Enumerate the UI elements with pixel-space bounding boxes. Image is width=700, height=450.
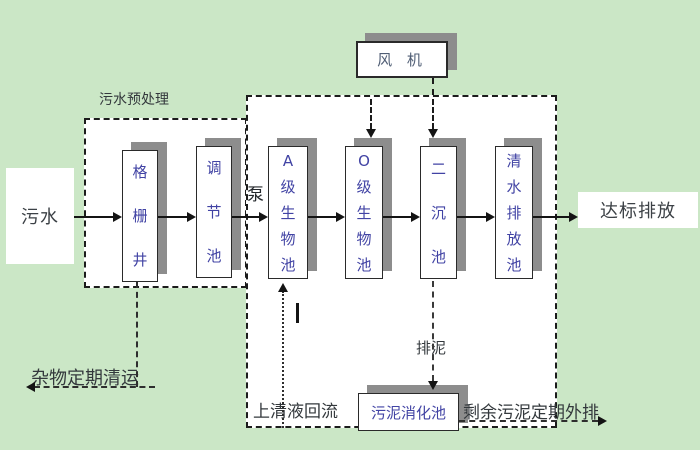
arrowhead-sewage-to-gridwell	[113, 212, 122, 222]
arrowhead-excess-sludge	[598, 416, 607, 426]
excess-sludge-line	[459, 420, 598, 422]
flow-line-a-to-o	[308, 216, 336, 218]
pretreatment-label: 污水预处理	[99, 89, 169, 109]
arrowhead-fan-to-secondary-tank	[428, 129, 438, 138]
debris-removal-hline	[34, 386, 155, 388]
node-a-bio-tank: A级生物池	[268, 146, 308, 279]
node-sludge-digestion-tank: 污泥消化池	[358, 393, 459, 431]
flow-line-secondary-to-clean	[457, 216, 486, 218]
node-secondary-sedimentation-tank: 二沉池	[420, 146, 457, 279]
node-sludge-digestion-tank-label: 污泥消化池	[371, 402, 446, 423]
node-grid-well-label: 格栅井	[130, 150, 150, 282]
fan-stem-line	[432, 78, 434, 95]
node-standard-discharge-label: 达标排放	[600, 197, 676, 223]
node-regulating-tank: 调节池	[196, 146, 232, 278]
node-grid-well: 格栅井	[122, 150, 158, 282]
node-a-bio-tank-label: A级生物池	[278, 148, 298, 278]
node-regulating-tank-label: 调节池	[204, 146, 224, 278]
supernatant-reflux-label: 上清液回流	[253, 397, 338, 422]
node-fan: 风 机	[356, 41, 448, 78]
node-fan-label: 风 机	[377, 49, 427, 70]
node-sewage-label: 污水	[21, 203, 59, 229]
arrowhead-sludge-discharge	[428, 381, 438, 390]
arrowhead-fan-to-o-tank	[366, 129, 376, 138]
sludge-discharge-line	[432, 281, 434, 381]
fan-branch-line-secondary-tank	[432, 99, 434, 129]
arrowhead-secondary-to-clean	[486, 212, 495, 222]
node-o-bio-tank-label: O级生物池	[354, 148, 374, 278]
flow-line-clean-to-discharge	[533, 216, 569, 218]
arrowhead-a-to-o	[336, 212, 345, 222]
sludge-discharge-label: 排泥	[416, 337, 446, 358]
flow-line-gridwell-to-regulating	[158, 216, 187, 218]
node-standard-discharge: 达标排放	[578, 192, 698, 228]
arrowhead-regulating-to-a	[259, 212, 268, 222]
node-clean-water-discharge-tank: 清水排放池	[495, 146, 533, 279]
arrowhead-gridwell-to-regulating	[187, 212, 196, 222]
node-o-bio-tank: O级生物池	[345, 146, 383, 279]
arrowhead-debris-removal	[26, 382, 35, 392]
process-flow-diagram: 污水预处理 污水 达标排放 格栅井 调节池 A级生物池 O级生物池 二沉池 清水…	[0, 0, 700, 450]
arrowhead-o-to-secondary	[411, 212, 420, 222]
flow-line-o-to-secondary	[383, 216, 411, 218]
arrowhead-clean-to-discharge	[569, 212, 578, 222]
node-secondary-sedimentation-tank-label: 二沉池	[429, 147, 449, 279]
arrowhead-supernatant-reflux	[278, 283, 288, 292]
tick-mark	[296, 303, 299, 323]
fan-branch-line-o-tank	[370, 99, 372, 129]
node-clean-water-discharge-tank-label: 清水排放池	[504, 148, 524, 278]
debris-removal-vline	[136, 282, 138, 387]
node-sewage: 污水	[6, 168, 74, 264]
pump-label: 泵	[247, 180, 264, 205]
supernatant-reflux-line	[282, 291, 284, 428]
flow-line-regulating-to-a	[232, 216, 259, 218]
flow-line-sewage-to-gridwell	[74, 216, 113, 218]
